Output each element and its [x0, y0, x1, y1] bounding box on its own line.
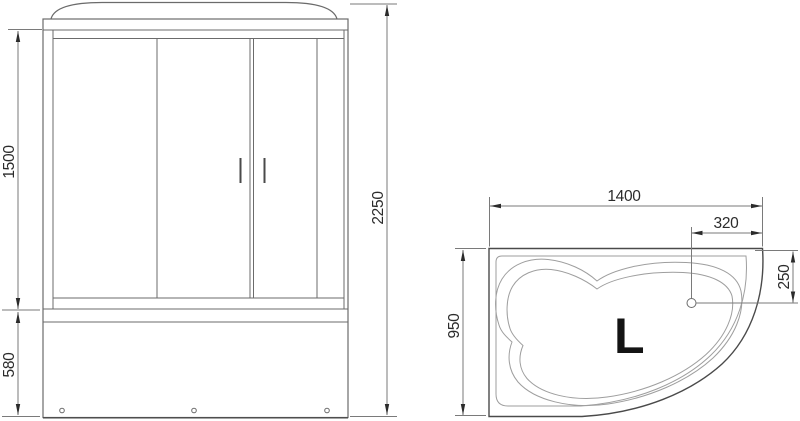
dome-roof [51, 3, 337, 20]
front-view [43, 3, 348, 418]
frame-horizontal-lines [43, 30, 348, 322]
door-handle-right [264, 158, 266, 183]
dimension-value: 250 [776, 264, 793, 290]
dimension-glass-height: 1500 [1, 30, 42, 311]
dimension-drain-from-top: 250 [696, 251, 798, 304]
dimension-value: 320 [714, 215, 740, 232]
technical-drawing: 1500 580 2250 L 1400 [0, 0, 800, 421]
base-hole-right [325, 408, 330, 413]
orientation-label: L [614, 308, 645, 364]
door-handle-left [240, 158, 242, 183]
dimension-value: 1500 [1, 145, 18, 179]
dimension-value: 580 [1, 352, 18, 378]
glass-panel-dividers [157, 39, 317, 299]
dimension-value: 2250 [370, 191, 387, 225]
dimension-base-height: 580 [1, 312, 40, 417]
drawing-svg: 1500 580 2250 L 1400 [0, 0, 800, 421]
dimension-value: 1400 [607, 188, 641, 205]
dimension-tub-depth: 950 [446, 249, 486, 416]
base-hole-center [192, 408, 197, 413]
base-hole-left [60, 408, 65, 413]
frame-vertical-lines [53, 30, 344, 309]
dimension-value: 950 [446, 313, 463, 339]
drain-circle [687, 299, 696, 308]
cabin-outline [43, 19, 348, 418]
dimension-total-height: 2250 [350, 4, 397, 417]
top-view: L [489, 249, 763, 417]
